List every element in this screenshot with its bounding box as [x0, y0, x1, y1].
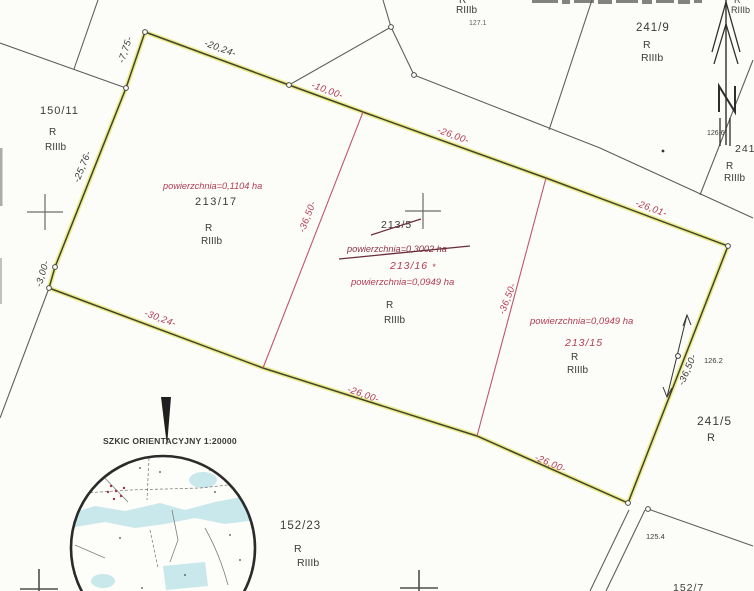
area-label-213-15: powierzchnia=0,0949 ha [530, 317, 633, 327]
soil-class-topmid: RIIIb [456, 6, 477, 16]
area-label-213-17: powierzchnia=0,1104 ha [163, 182, 262, 191]
point-label-126-6: 126.6 [707, 130, 725, 137]
old-area-label-213-5: powierzchnia=0,3002 ha [347, 245, 447, 254]
revision-mark: * [432, 263, 436, 272]
land-use-213-16: R [386, 301, 393, 311]
land-use-152-23: R [294, 544, 302, 555]
cadastral-sketch-page: 150/11 R RIIIb R RIIIb 127.1 241/9 R RII… [0, 0, 754, 591]
land-use-213-15: R [571, 353, 578, 363]
scan-edge-smudge [0, 148, 3, 206]
parcel-number-213-17: 213/17 [195, 197, 238, 208]
orientation-inset-map [69, 397, 260, 591]
parcel-number-213-15: 213/15 [565, 338, 603, 349]
parcel-number-152-7: 152/7 [673, 583, 704, 591]
land-use-241-9: R [643, 40, 651, 51]
soil-class-213-17: RIIIb [201, 237, 222, 247]
old-parcel-number-213-5: 213/5 [381, 220, 412, 231]
soil-class-150-11: RIIIb [45, 143, 66, 153]
point-label-127-1: 127.1 [469, 20, 487, 27]
land-use-150-11: R [49, 128, 56, 138]
soil-class-241-9: RIIIb [641, 53, 663, 64]
scan-edge-smudge [0, 258, 2, 304]
soil-class-213-16: RIIIb [384, 316, 405, 326]
scan-edge-fragments [532, 0, 702, 4]
main-parcel-boundary [49, 32, 728, 503]
parcel-number-241-5: 241/5 [697, 415, 732, 427]
parcel-number-213-16: 213/16 [390, 261, 428, 272]
soil-class-213-15: RIIIb [567, 366, 588, 376]
parcel-number-241-9: 241/9 [636, 23, 670, 35]
point-label-125-4: 125.4 [646, 533, 665, 541]
soil-class-241-edge: RIIIb [724, 174, 745, 184]
inset-title: SZKIC ORIENTACYJNY 1:20000 [103, 437, 237, 446]
north-arrow-icon [712, 0, 740, 146]
point-label-126-2: 126.2 [704, 357, 723, 365]
parcel-number-241-edge: 241/ [735, 144, 754, 155]
land-use-213-17: R [205, 224, 212, 234]
soil-class-topright: RIIIb [731, 6, 750, 15]
main-parcel-boundary-highlight [49, 32, 728, 503]
point-dot [662, 150, 665, 153]
parcel-number-150-11: 150/11 [40, 106, 79, 117]
area-label-213-16: powierzchnia=0,0949 ha [351, 278, 454, 288]
land-use-241-5: R [707, 433, 715, 444]
survey-map-canvas [0, 0, 754, 591]
land-use-241-edge: R [726, 162, 733, 172]
soil-class-152-23: RIIIb [297, 558, 319, 569]
parcel-number-152-23: 152/23 [280, 521, 321, 533]
